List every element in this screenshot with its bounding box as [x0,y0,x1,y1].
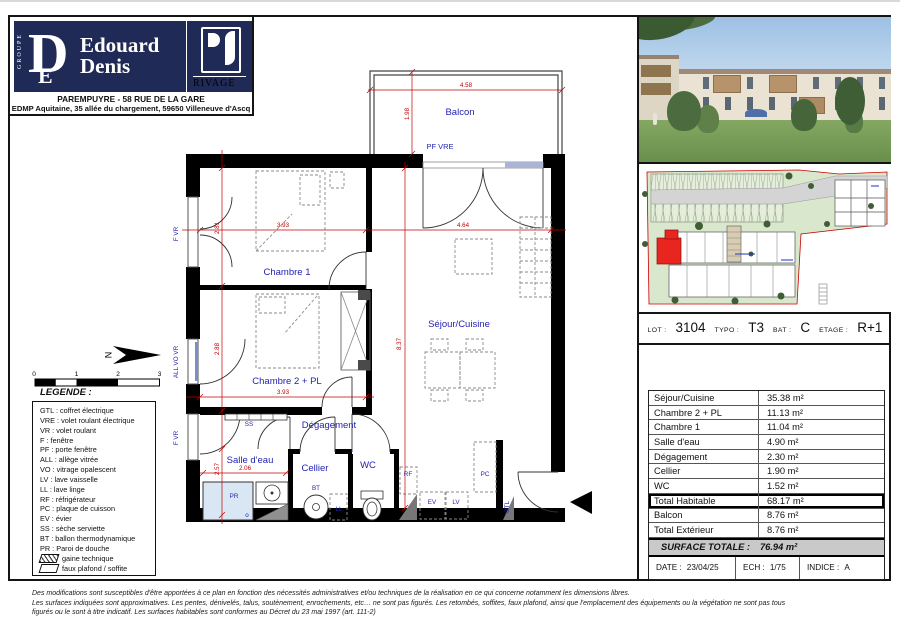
label-rf: RF [404,471,413,478]
date-value: 23/04/25 [687,563,719,572]
balcony-door-sill [505,162,543,168]
legend-item: LV : lave vaisselle [40,475,155,485]
surface-total-value: 76.94 m² [752,540,797,555]
etage-label: ETAGE : [819,327,848,334]
dim-sejour-depth: 8.37 [396,337,403,350]
label-ll: LL [335,506,343,513]
legend-item: RF : réfrigérateur [40,495,155,505]
legend-item: SS : sèche serviette [40,524,155,534]
surface-value: 11.13 m² [759,406,803,420]
dim-chambre1-width: 3.93 [277,222,290,229]
surface-label: Salle d'eau [649,435,759,449]
surface-total-label: SURFACE TOTALE : [649,540,752,555]
photo-tree [835,77,865,125]
label-ss: SS [245,421,253,428]
room-label-salle-eau: Salle d'eau [227,455,274,466]
label-lv: LV [452,499,460,506]
dim-salle-eau-width: 2.06 [239,465,252,472]
legend-item: GTL : coffret électrique [40,406,155,416]
surface-label: Chambre 1 [649,420,759,434]
brand-group-label: GROUPE [17,33,23,69]
dim-balcon-width: 4.58 [460,82,473,89]
surface-value: 8.76 m² [759,523,799,537]
allege-vitree-glass [195,342,198,381]
ech-value: 1/75 [770,563,786,572]
lot-value: 3104 [675,320,705,335]
gaine-technique-icon [39,554,60,563]
legend-item: VO : vitrage opalescent [40,465,155,475]
surface-value: 4.90 m² [759,435,799,449]
dim-balcon-depth: 1.98 [404,107,411,120]
site-plan-drawing [639,164,891,312]
surface-label: Total Extérieur [649,523,759,537]
title-block-row: DATE :23/04/25 ECH :1/75 INDICE :A [649,557,884,579]
surface-value: 1.90 m² [759,464,799,478]
table-row: Chambre 111.04 m² [649,420,884,435]
north-scale: N 0 1 2 3 [25,340,165,390]
equipment-labels: PF VRE SS PR o BT LL RF EV LV PC GTL F V… [173,142,511,519]
typo-value: T3 [748,320,764,335]
label-ev: EV [428,499,437,506]
bat-label: BAT : [773,327,791,334]
legend-item: PC : plaque de cuisson [40,504,155,514]
photo-umbrella [745,109,767,117]
towel-radiator [225,414,287,420]
highlighted-unit [657,238,681,264]
label-o: o [245,512,249,519]
legend-item: BT : ballon thermodynamique [40,534,155,544]
surface-table: Séjour/Cuisine35.38 m² Chambre 2 + PL11.… [648,390,885,580]
room-label-sejour: Séjour/Cuisine [428,319,490,330]
room-label-wc: WC [360,460,376,471]
indice-value: A [844,563,849,572]
surface-label: Total Habitable [649,494,759,508]
legend-item-gaine: gaine technique [40,554,155,564]
surface-value: 1.52 m² [759,479,799,493]
ech-label: ECH : [743,563,765,572]
legend-item: PR : Paroi de douche [40,544,155,554]
dim-sejour-width: 4.64 [457,222,470,229]
lot-info-bar: LOT : 3104 TYPO : T3 BAT : C ETAGE : R+1 [639,314,891,343]
legend-item: VR : volet roulant [40,426,155,436]
scale-tick: 2 [116,371,120,378]
typo-label: TYPO : [715,327,740,334]
room-label-degagement: Dégagement [302,420,357,431]
label-all-vo-vr: ALL VO VR [173,345,180,378]
scale-bar: 0 1 2 3 [32,371,162,386]
dim-chambre2-depth: 2.88 [214,342,221,355]
surface-label: Cellier [649,464,759,478]
label-f-vr-top: F VR [173,226,180,241]
site-plan [639,164,891,312]
dim-salle-eau-depth: 2.57 [214,462,221,475]
date-cell: DATE :23/04/25 [649,557,736,579]
surface-value: 35.38 m² [759,391,804,405]
table-row: WC1.52 m² [649,479,884,494]
label-bt: BT [312,485,320,492]
photo-balcony [769,75,797,93]
room-label-chambre1: Chambre 1 [264,267,311,278]
bat-value: C [800,320,810,335]
label-pr: PR [230,493,239,500]
disclaimer-line-1: Des modifications sont susceptibles d'êt… [32,589,877,599]
surface-value: 2.30 m² [759,450,799,464]
dim-chambre2-width: 3.93 [277,389,290,396]
ed-monogram: DE [28,23,68,85]
floor-plan: 4.58 1.98 3.93 4.64 3.93 2.06 8.37 2.81 … [150,42,650,552]
disclaimer-line-2: Les surfaces indiquées sont approximativ… [32,599,877,609]
indice-cell: INDICE :A [800,557,884,579]
building-photo [639,17,891,162]
table-row: Dégagement2.30 m² [649,450,884,465]
legend-item: PF : porte fenêtre [40,445,155,455]
table-row: Chambre 2 + PL11.13 m² [649,406,884,421]
surface-value: 11.04 m² [759,420,803,434]
legend-item: VRE : volet roulant électrique [40,416,155,426]
legend-item-faux-plafond: faux plafond / soffite [40,564,155,574]
etage-value: R+1 [857,320,882,335]
lot-label: LOT : [648,327,667,334]
table-row: Séjour/Cuisine35.38 m² [649,391,884,406]
room-label-cellier: Cellier [302,463,329,474]
legend-item-label: gaine technique [62,554,114,564]
table-row: Total Extérieur8.76 m² [649,523,884,538]
scale-tick: 1 [75,371,79,378]
label-pc: PC [481,471,490,478]
surface-label: Dégagement [649,450,759,464]
label-gtl: GTL [504,500,511,513]
north-letter: N [103,352,113,359]
legend-item: LL : lave linge [40,485,155,495]
disclaimer-line-3: figurés ou le sont à titre indicatif. Le… [32,608,877,618]
room-label-balcon: Balcon [445,107,474,118]
room-label-chambre2: Chambre 2 + PL [252,376,321,387]
photo-person [653,113,657,125]
legend-title: LEGENDE : [40,387,92,398]
divider [639,343,891,345]
water-heater [304,495,328,519]
legend-item: ALL : allège vitrée [40,455,155,465]
disclaimer: Des modifications sont susceptibles d'êt… [32,589,877,618]
photo-trees [667,91,701,131]
table-row-surface-totale: SURFACE TOTALE :76.94 m² [649,538,884,557]
label-pf-vre: PF VRE [426,142,453,151]
scale-cell: ECH :1/75 [736,557,800,579]
table-row: Cellier1.90 m² [649,464,884,479]
legend: GTL : coffret électrique VRE : volet rou… [32,401,156,576]
dim-chambre1-depth: 2.81 [214,221,221,234]
entrance-arrow-icon [570,491,592,514]
table-row: Balcon8.76 m² [649,509,884,524]
indice-label: INDICE : [807,563,839,572]
furniture [256,171,551,520]
table-row-total-habitable: Total Habitable68.17 m² [649,494,884,509]
surface-value: 68.17 m² [759,494,804,508]
surface-label: Balcon [649,509,759,523]
label-f-vr-bottom: F VR [173,430,180,445]
brand-name: EdouardDenis [80,35,159,77]
surface-value: 8.76 m² [759,509,799,523]
surface-label: Séjour/Cuisine [649,391,759,405]
table-row: Salle d'eau4.90 m² [649,435,884,450]
faux-plafond-icon [39,564,60,573]
photo-balcony [799,97,825,114]
legend-item: F : fenêtre [40,436,155,446]
legend-item: EV : évier [40,514,155,524]
toilet [363,498,381,520]
surface-label: Chambre 2 + PL [649,406,759,420]
date-label: DATE : [656,563,682,572]
placard [341,290,370,370]
photo-balcony [713,75,741,93]
scale-tick: 0 [32,371,36,378]
legend-item-label: faux plafond / soffite [62,564,127,574]
surface-label: WC [649,479,759,493]
plan-sheet: GROUPE DE EdouardDenis RIVAGE PAREMPUYRE… [0,0,900,630]
